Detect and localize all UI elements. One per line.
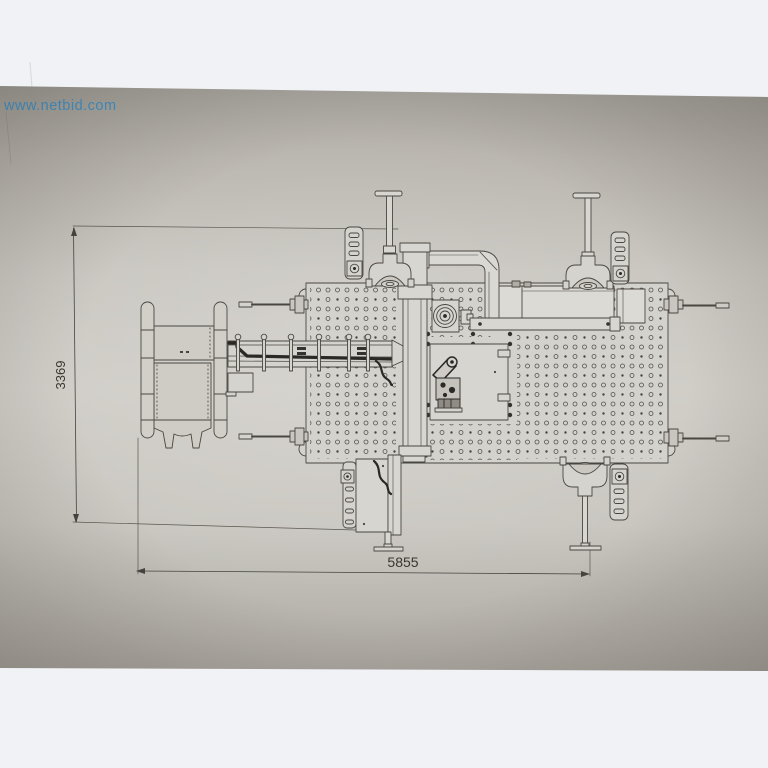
photo-vignette bbox=[0, 80, 768, 675]
photo-of-technical-drawing: www.netbid.com bbox=[0, 0, 768, 768]
